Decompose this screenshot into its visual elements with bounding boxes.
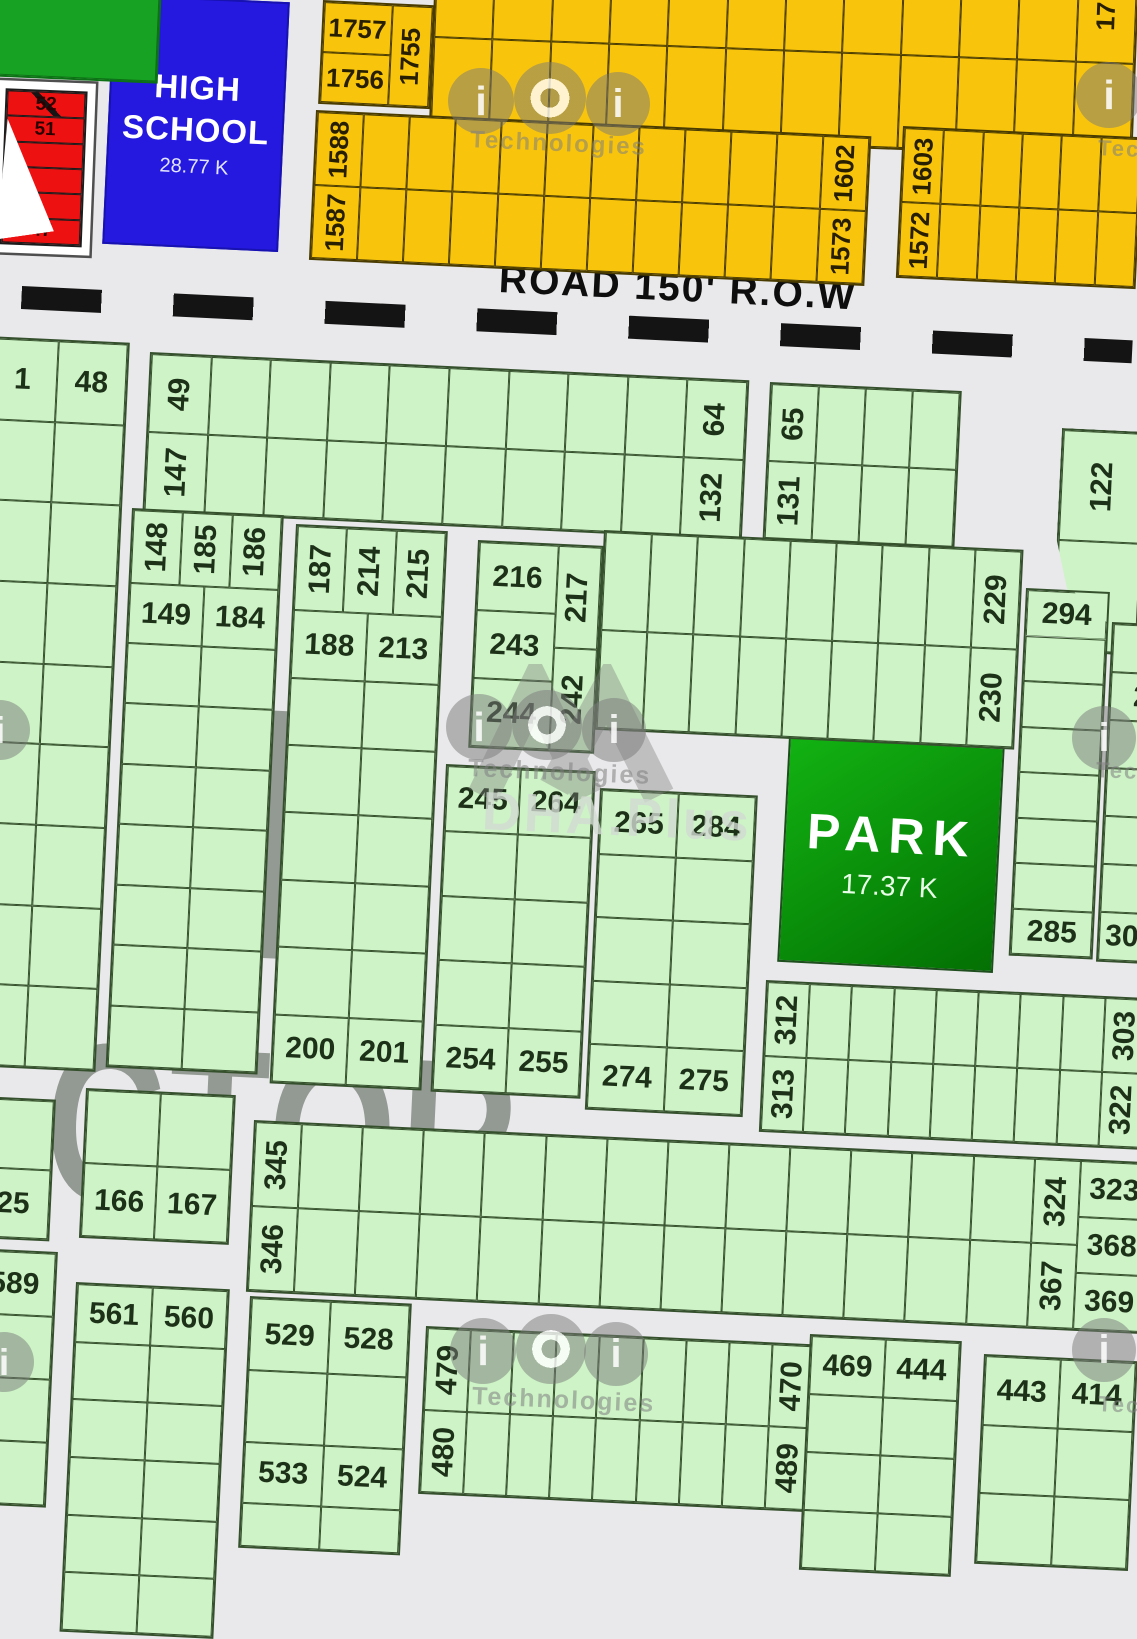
plot-label: 275 [678, 1063, 730, 1099]
plot[interactable] [327, 363, 390, 444]
plot[interactable]: 1573 [816, 209, 865, 284]
plot[interactable] [0, 580, 47, 664]
plot[interactable] [439, 896, 515, 964]
plot[interactable] [859, 465, 910, 544]
park-block[interactable]: PARK 17.37 K [777, 736, 1005, 973]
plot[interactable] [0, 822, 36, 906]
plot[interactable]: 25 [0, 1167, 51, 1239]
plot[interactable]: 230 [966, 647, 1017, 747]
plot-label: 469 [822, 1349, 874, 1385]
plot[interactable] [849, 986, 895, 1062]
plot[interactable] [125, 643, 202, 707]
plot[interactable] [267, 360, 330, 441]
plot[interactable] [32, 825, 105, 909]
plot[interactable]: 589 [0, 1250, 56, 1317]
plot[interactable]: 166 [81, 1163, 157, 1239]
plot[interactable] [909, 1153, 974, 1240]
plot-label: 303 [1106, 1010, 1137, 1062]
plot[interactable]: 1572 [898, 202, 941, 278]
plot[interactable] [682, 1340, 729, 1424]
plot[interactable] [924, 547, 975, 647]
plot[interactable] [740, 539, 791, 639]
plot[interactable]: 443 [983, 1356, 1061, 1428]
plot[interactable]: 560 [150, 1288, 228, 1349]
plot[interactable] [298, 1124, 363, 1211]
plot[interactable] [807, 984, 853, 1060]
plot[interactable] [667, 984, 747, 1051]
plot[interactable] [541, 196, 590, 271]
plot[interactable]: 1588 [314, 112, 363, 187]
plot-label: 1603 [906, 136, 940, 195]
plot[interactable]: 444 [883, 1340, 960, 1401]
plot[interactable]: 1755 [388, 5, 433, 107]
plot[interactable]: 524 [321, 1445, 403, 1510]
plot[interactable] [786, 1147, 851, 1234]
plot-label: 346 [255, 1223, 291, 1275]
plot[interactable] [551, 0, 613, 44]
plot[interactable] [976, 1493, 1054, 1565]
plot-label: 149 [140, 596, 192, 632]
plot[interactable] [196, 707, 273, 771]
plot[interactable] [621, 454, 684, 535]
plot[interactable] [970, 1156, 1035, 1243]
plot[interactable]: 64 [684, 379, 747, 460]
plot[interactable] [509, 964, 585, 1032]
plot-label: 214 [352, 546, 388, 598]
plot[interactable] [633, 200, 682, 275]
plot[interactable] [145, 1403, 223, 1464]
plot[interactable]: 216 [477, 542, 559, 614]
plot[interactable]: 368 [1075, 1217, 1137, 1276]
plot[interactable] [726, 0, 788, 50]
plot[interactable] [1017, 772, 1099, 821]
plot-label: 122 [1084, 461, 1120, 513]
plot[interactable] [403, 189, 452, 264]
plot[interactable] [980, 132, 1023, 208]
plot[interactable] [933, 990, 979, 1066]
plot[interactable] [44, 583, 117, 667]
plot[interactable] [449, 192, 498, 267]
plot[interactable] [828, 641, 879, 741]
plot[interactable]: 48 [55, 341, 128, 425]
plot[interactable] [284, 745, 361, 816]
plot[interactable] [157, 1094, 233, 1170]
plot[interactable] [804, 1452, 881, 1513]
plot[interactable] [463, 1412, 510, 1496]
plot[interactable]: 1 [0, 338, 59, 422]
plot[interactable] [941, 130, 984, 206]
plot[interactable]: 367 [1027, 1243, 1077, 1329]
plot[interactable] [119, 764, 196, 828]
plot[interactable] [839, 53, 901, 148]
plot[interactable]: 313 [761, 1056, 807, 1132]
plot[interactable] [199, 646, 276, 710]
plot[interactable] [1060, 996, 1106, 1072]
plot[interactable] [920, 645, 971, 745]
plot[interactable] [25, 986, 98, 1070]
plot[interactable] [862, 389, 913, 468]
plot[interactable] [624, 377, 687, 458]
plot[interactable] [1094, 211, 1137, 287]
plot[interactable]: 294 [1026, 590, 1108, 639]
plot[interactable] [694, 536, 745, 636]
plot[interactable] [416, 1214, 481, 1301]
plot-label: 533 [257, 1456, 309, 1492]
plot-label: 324 [1038, 1176, 1074, 1228]
plot[interactable] [505, 371, 568, 452]
plot[interactable] [1056, 1070, 1102, 1146]
plot[interactable]: 229 [971, 550, 1022, 650]
plot[interactable]: 480 [420, 1410, 467, 1494]
plot[interactable] [349, 950, 426, 1021]
plot[interactable]: 213 [365, 614, 442, 685]
plot[interactable]: 1602 [820, 136, 869, 211]
plot[interactable]: 65 [768, 384, 819, 463]
plot[interactable] [878, 545, 929, 645]
plot[interactable] [147, 1345, 225, 1406]
plot-label: 184 [214, 600, 266, 636]
plot-label: 322 [1103, 1084, 1137, 1136]
plot[interactable] [324, 1374, 406, 1450]
plot[interactable]: 167 [154, 1166, 230, 1242]
plot[interactable] [1017, 994, 1063, 1070]
plot[interactable] [446, 368, 509, 449]
plot[interactable] [542, 1136, 607, 1223]
plot[interactable] [801, 1510, 878, 1571]
plot[interactable] [70, 1399, 148, 1460]
plot[interactable]: 323 [1078, 1161, 1137, 1220]
plot[interactable] [812, 463, 863, 542]
plot[interactable] [1059, 136, 1102, 212]
plot[interactable] [64, 1515, 142, 1576]
plot-label: 132 [694, 472, 730, 524]
plot[interactable] [673, 857, 753, 924]
plot[interactable] [601, 532, 652, 632]
plot[interactable]: 275 [664, 1048, 744, 1115]
plot[interactable] [887, 1062, 933, 1138]
plot[interactable]: 51 [6, 116, 85, 144]
plot[interactable] [667, 0, 729, 48]
plot[interactable] [406, 116, 455, 191]
plot[interactable]: 255 [506, 1028, 582, 1096]
plot[interactable] [51, 422, 124, 506]
plot[interactable]: 533 [242, 1442, 324, 1507]
plot[interactable] [502, 449, 565, 530]
plot[interactable] [721, 1228, 786, 1315]
plot[interactable] [139, 1518, 217, 1579]
plot[interactable] [1051, 1497, 1129, 1569]
plot[interactable] [113, 884, 190, 948]
plot[interactable] [909, 391, 960, 470]
plot[interactable] [966, 1240, 1031, 1327]
plot[interactable] [735, 637, 786, 737]
plot[interactable] [975, 992, 1021, 1068]
plot[interactable] [1013, 863, 1095, 912]
plot[interactable] [111, 945, 188, 1009]
plot[interactable]: 302 [1098, 912, 1137, 963]
plot[interactable] [538, 1220, 603, 1307]
plot[interactable]: 1756 [320, 52, 390, 105]
plot[interactable]: 17 [1075, 0, 1137, 64]
plot[interactable]: 529 [249, 1298, 331, 1374]
plot[interactable] [1100, 864, 1137, 915]
plot[interactable] [803, 1058, 849, 1134]
plot[interactable]: 1757 [323, 2, 393, 55]
plot[interactable] [587, 198, 636, 273]
plot[interactable]: 528 [327, 1302, 409, 1378]
plot[interactable] [495, 194, 544, 269]
plot[interactable]: 285 [1011, 908, 1093, 957]
plot[interactable] [780, 50, 842, 145]
plot[interactable]: 122 [1059, 430, 1137, 544]
plot[interactable] [40, 664, 113, 748]
plot[interactable] [355, 1211, 420, 1298]
plot[interactable]: 561 [75, 1284, 153, 1345]
watermark-text: Tec [1095, 757, 1137, 785]
plot[interactable] [930, 1064, 976, 1140]
plot-label: 1756 [325, 62, 384, 96]
plot[interactable] [0, 983, 28, 1067]
plot[interactable] [294, 1208, 359, 1295]
plot[interactable] [937, 204, 980, 280]
plot[interactable] [647, 534, 698, 634]
plot[interactable]: 303 [1102, 998, 1137, 1074]
plot[interactable] [679, 202, 728, 277]
plot[interactable] [670, 921, 750, 988]
plot[interactable] [1015, 817, 1097, 866]
plot[interactable] [362, 681, 439, 752]
plot[interactable] [319, 1506, 400, 1553]
plot[interactable] [1016, 208, 1059, 284]
plot[interactable] [108, 1005, 185, 1069]
plot[interactable] [891, 988, 937, 1064]
plot[interactable] [184, 948, 261, 1012]
plot[interactable] [593, 917, 673, 984]
plot[interactable]: 185 [180, 512, 233, 587]
watermark-i-icon: i [1072, 1318, 1136, 1382]
plot[interactable] [512, 899, 588, 967]
plot[interactable] [0, 1439, 47, 1506]
plot[interactable] [67, 1457, 145, 1518]
plot[interactable]: 132 [680, 457, 743, 538]
plot[interactable] [357, 187, 406, 262]
plot[interactable]: 322 [1098, 1072, 1137, 1148]
plot[interactable] [771, 207, 820, 282]
plot[interactable] [845, 1060, 891, 1136]
plot[interactable] [264, 438, 327, 519]
plot[interactable] [288, 678, 365, 749]
plot[interactable] [352, 883, 429, 954]
plot[interactable] [1112, 624, 1137, 675]
plot[interactable] [977, 206, 1020, 282]
plot[interactable] [1055, 209, 1098, 285]
plot[interactable]: 469 [809, 1336, 886, 1397]
plot-label: 480 [425, 1426, 461, 1478]
plot[interactable] [1019, 134, 1062, 210]
plot[interactable] [848, 1150, 913, 1237]
plot[interactable] [137, 1576, 215, 1637]
plot[interactable]: 1603 [901, 128, 944, 204]
plot[interactable] [722, 1424, 769, 1508]
plot[interactable] [725, 1342, 772, 1426]
plot[interactable] [0, 1098, 54, 1170]
plot[interactable] [728, 132, 777, 207]
plot[interactable] [360, 114, 409, 189]
plot[interactable] [905, 1237, 970, 1324]
plot[interactable] [190, 827, 267, 891]
plot[interactable]: 187 [294, 526, 347, 612]
plot[interactable]: 188 [291, 610, 368, 681]
plot[interactable] [561, 452, 624, 533]
plot[interactable] [1103, 816, 1137, 867]
plot[interactable] [47, 503, 120, 587]
plot-label: 1757 [328, 12, 387, 46]
plot[interactable] [774, 134, 823, 209]
plot[interactable] [679, 1422, 726, 1506]
plot[interactable]: 346 [248, 1206, 298, 1292]
plot[interactable]: 274 [587, 1044, 667, 1111]
plot[interactable]: 201 [346, 1018, 423, 1089]
plot[interactable]: 324 [1031, 1159, 1081, 1245]
plot[interactable]: 345 [252, 1122, 302, 1208]
plot[interactable]: 200 [272, 1014, 349, 1085]
plot[interactable] [875, 1513, 952, 1574]
plot-label: 589 [0, 1265, 40, 1301]
plot[interactable] [905, 468, 956, 547]
plot[interactable] [142, 1460, 220, 1521]
plot[interactable] [784, 0, 846, 53]
plot[interactable] [245, 1370, 327, 1446]
plot[interactable] [240, 1503, 321, 1550]
plot[interactable] [549, 1416, 596, 1500]
plot[interactable] [72, 1342, 150, 1403]
plot-label: 313 [766, 1068, 802, 1120]
plot[interactable] [783, 1231, 848, 1318]
plot[interactable] [355, 816, 432, 887]
plot[interactable] [806, 1394, 883, 1455]
plot[interactable]: 131 [765, 461, 816, 540]
plot[interactable] [122, 703, 199, 767]
plot[interactable]: 1587 [311, 185, 360, 260]
plot[interactable]: 214 [343, 528, 396, 614]
plot[interactable] [358, 748, 435, 819]
plot[interactable] [506, 1414, 553, 1498]
plot[interactable]: 52 [7, 90, 86, 118]
plot[interactable]: 186 [229, 515, 282, 590]
plot[interactable] [979, 1425, 1057, 1497]
plot[interactable] [477, 1217, 542, 1304]
plot[interactable] [359, 1127, 424, 1214]
plot[interactable] [481, 1133, 546, 1220]
plot[interactable] [1024, 636, 1106, 685]
plot-label: 187 [302, 544, 338, 596]
plot[interactable] [689, 634, 740, 734]
plot[interactable]: 215 [392, 531, 445, 617]
plot[interactable] [609, 0, 671, 46]
plot[interactable] [972, 1066, 1018, 1142]
plot[interactable]: 49 [148, 354, 211, 435]
plot[interactable] [832, 543, 883, 643]
plot[interactable] [434, 0, 496, 39]
plot[interactable] [182, 1009, 259, 1073]
plot[interactable] [0, 499, 51, 583]
plot[interactable] [278, 880, 355, 951]
plot[interactable] [844, 1234, 909, 1321]
plot[interactable] [281, 812, 358, 883]
plot[interactable] [660, 1225, 725, 1312]
plot[interactable] [28, 905, 101, 989]
plot[interactable]: 149 [128, 583, 205, 647]
plot-label: 254 [445, 1041, 497, 1077]
plot[interactable] [599, 1223, 664, 1310]
plot[interactable] [682, 129, 731, 204]
plot[interactable] [786, 541, 837, 641]
plot[interactable]: 148 [130, 510, 183, 585]
plot[interactable] [187, 888, 264, 952]
plot[interactable] [436, 960, 512, 1028]
plot[interactable]: 184 [202, 586, 279, 650]
plot[interactable] [84, 1090, 160, 1166]
plot[interactable] [0, 0, 160, 82]
plot[interactable] [0, 902, 32, 986]
plot[interactable] [1017, 0, 1079, 62]
plot[interactable] [1054, 1428, 1132, 1500]
plot[interactable] [878, 1455, 955, 1516]
plot[interactable] [0, 419, 55, 503]
plot[interactable] [635, 1420, 682, 1504]
plot[interactable] [442, 446, 505, 527]
watermark-ring-icon [514, 62, 586, 134]
plot-label: 217 [560, 572, 596, 624]
plot[interactable] [275, 947, 352, 1018]
watermark-i-icon: i [448, 68, 514, 134]
plot[interactable] [725, 1144, 790, 1231]
plot[interactable] [420, 1130, 485, 1217]
plot[interactable] [193, 767, 270, 831]
plot[interactable] [62, 1572, 140, 1633]
plot[interactable]: 312 [764, 982, 810, 1058]
plot[interactable] [842, 0, 904, 55]
plot[interactable]: 217 [554, 546, 602, 650]
plot[interactable] [603, 1139, 668, 1226]
plot[interactable] [323, 440, 386, 521]
plot[interactable] [1014, 1068, 1060, 1144]
plot[interactable] [386, 365, 449, 446]
plot[interactable] [36, 744, 109, 828]
plot[interactable] [596, 854, 676, 921]
plot[interactable] [208, 357, 271, 438]
plot[interactable] [664, 1142, 729, 1229]
plot[interactable] [565, 374, 628, 455]
plot[interactable] [874, 643, 925, 743]
plot[interactable]: 147 [145, 432, 208, 513]
plot[interactable] [959, 0, 1021, 59]
green-band-312: 312303313322 [759, 980, 1137, 1150]
plot[interactable]: 254 [433, 1025, 509, 1093]
plot[interactable] [592, 1418, 639, 1502]
plot[interactable] [590, 981, 670, 1048]
plot[interactable] [725, 205, 774, 280]
plot[interactable] [116, 824, 193, 888]
plot[interactable] [493, 0, 555, 41]
plot[interactable] [880, 1398, 957, 1459]
plot[interactable] [815, 386, 866, 465]
plot[interactable] [204, 435, 267, 516]
plot-label: 147 [158, 447, 194, 499]
plot[interactable] [901, 0, 963, 57]
plot[interactable] [383, 443, 446, 524]
plot[interactable] [781, 639, 832, 739]
